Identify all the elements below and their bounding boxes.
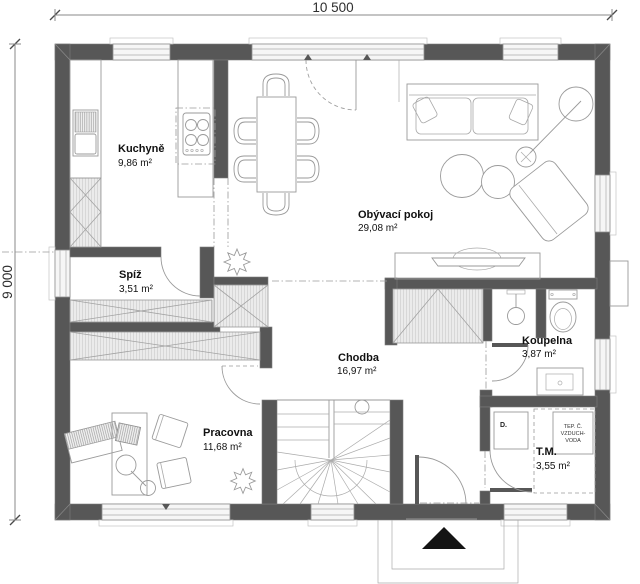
window-sill	[610, 172, 616, 235]
heat-pump-label-1: TEP. Č.	[564, 423, 583, 430]
window-terrace-glazing	[252, 44, 424, 60]
pracovna-door-arc	[222, 366, 260, 404]
window-kitchen	[113, 44, 170, 60]
wall-spiz-pracovna	[70, 322, 220, 332]
armchair	[507, 158, 592, 244]
window-sill	[610, 336, 616, 393]
dining-chair	[263, 193, 289, 215]
terrace-door-swing	[306, 60, 356, 110]
side-table	[559, 87, 593, 121]
room-label-spiz: Spíž	[119, 269, 142, 281]
wardrobe-pracovna	[70, 332, 260, 360]
dining-chair	[263, 74, 289, 96]
exterior-unit	[610, 261, 628, 306]
guest-chair	[157, 457, 192, 489]
piano	[64, 421, 122, 463]
dryer-label: D.	[500, 422, 507, 429]
window-spiz	[55, 250, 70, 297]
window-tm	[504, 504, 567, 520]
wall-kitchen-living	[214, 60, 228, 178]
room-label-chodba: Chodba	[338, 352, 380, 364]
tv-screen	[432, 258, 525, 266]
porch-outline	[378, 520, 518, 583]
dining-chair	[297, 156, 319, 182]
room-tm: D. TEP. Č. VZDUCH- VODA T.M. 3,55 m²	[485, 409, 595, 493]
window-sill	[501, 520, 570, 526]
tm-door-arc	[490, 450, 532, 492]
room-pracovna: Pracovna 11,68 m²	[64, 366, 260, 496]
floor-plan-page: 10 500 9 000	[0, 0, 640, 584]
dining-chair	[234, 118, 256, 144]
window-sill	[308, 520, 357, 526]
room-label-kuchyne: Kuchyně	[118, 143, 164, 155]
dryer-box: D.	[494, 412, 528, 449]
room-label-koupelna: Koupelna	[522, 335, 573, 347]
room-area-chodba: 16,97 m²	[337, 366, 377, 377]
window-stair	[311, 504, 354, 520]
room-area-tm: 3,55 m²	[536, 461, 571, 472]
heat-pump-label-3: VODA	[565, 438, 581, 444]
wardrobe-spiz-shelves	[70, 300, 212, 322]
wall-tm-west-stub	[480, 491, 490, 504]
window-sill	[110, 38, 173, 44]
window-sill	[99, 520, 233, 526]
heat-pump-label-2: VZDUCH-	[561, 431, 586, 437]
wall-wc-divider	[536, 289, 546, 338]
dining-chair	[234, 156, 256, 182]
stair-winders	[277, 420, 390, 504]
room-obyvaci-pokoj: Obývací pokoj 29,08 m²	[234, 60, 593, 279]
room-label-pracovna: Pracovna	[203, 427, 253, 439]
plant	[224, 249, 250, 275]
wall-stair-east	[390, 400, 403, 504]
tv-unit	[395, 248, 540, 279]
coffee-table	[441, 155, 484, 198]
room-koupelna: Koupelna 3,87 m²	[486, 290, 583, 395]
window-sill	[500, 38, 561, 44]
sofa	[407, 84, 538, 140]
desk-chair	[116, 455, 156, 496]
entrance-door-leaf	[415, 455, 419, 504]
dining-table-set	[234, 74, 319, 215]
entrance-marker	[422, 527, 466, 549]
entrance-door-arc	[419, 457, 466, 504]
room-spiz: Spíž 3,51 m²	[119, 257, 200, 296]
window-living-east	[595, 175, 610, 232]
wardrobe-chodba-small	[214, 285, 268, 327]
wardrobe-kitchen-corner	[70, 178, 101, 247]
wall-stair-west	[262, 400, 277, 504]
bathroom-sink	[507, 290, 525, 325]
wall-spiz-stub	[200, 247, 214, 298]
window-sill	[249, 38, 427, 44]
room-label-obyvaci-pokoj: Obývací pokoj	[358, 209, 433, 221]
window-koupelna	[595, 339, 610, 390]
window-sill	[49, 247, 55, 300]
wall-wardrobe-top	[214, 277, 268, 285]
staircase	[277, 400, 390, 504]
room-area-pracovna: 11,68 m²	[203, 442, 242, 453]
toilet	[549, 290, 577, 332]
room-area-spiz: 3,51 m²	[119, 284, 154, 295]
spiz-door-arc	[161, 257, 200, 296]
wall-kitchen-spiz	[70, 247, 161, 257]
height-dimension-label: 9 000	[0, 265, 15, 299]
washing-machine	[537, 368, 583, 395]
plant	[231, 469, 256, 494]
floor-plan-drawing: 10 500 9 000	[0, 0, 640, 584]
guest-chair	[152, 414, 189, 448]
wall-koupelna-tm	[480, 396, 597, 407]
dining-chair	[297, 118, 319, 144]
wall-tm-west-upper	[480, 407, 490, 451]
room-area-obyvaci-pokoj: 29,08 m²	[358, 223, 398, 234]
sink-drainer	[75, 112, 96, 132]
room-area-kuchyne: 9,86 m²	[118, 158, 153, 169]
wall-living-south	[385, 278, 597, 289]
room-label-tm: T.M.	[536, 446, 557, 458]
window-living-north	[503, 44, 558, 60]
room-area-koupelna: 3,87 m²	[522, 349, 557, 360]
wardrobe-chodba-large	[393, 289, 483, 343]
heat-pump-box: TEP. Č. VZDUCH- VODA	[553, 412, 593, 454]
dining-table	[257, 97, 296, 192]
width-dimension-label: 10 500	[312, 0, 353, 15]
wall-chodba-west	[260, 327, 272, 368]
